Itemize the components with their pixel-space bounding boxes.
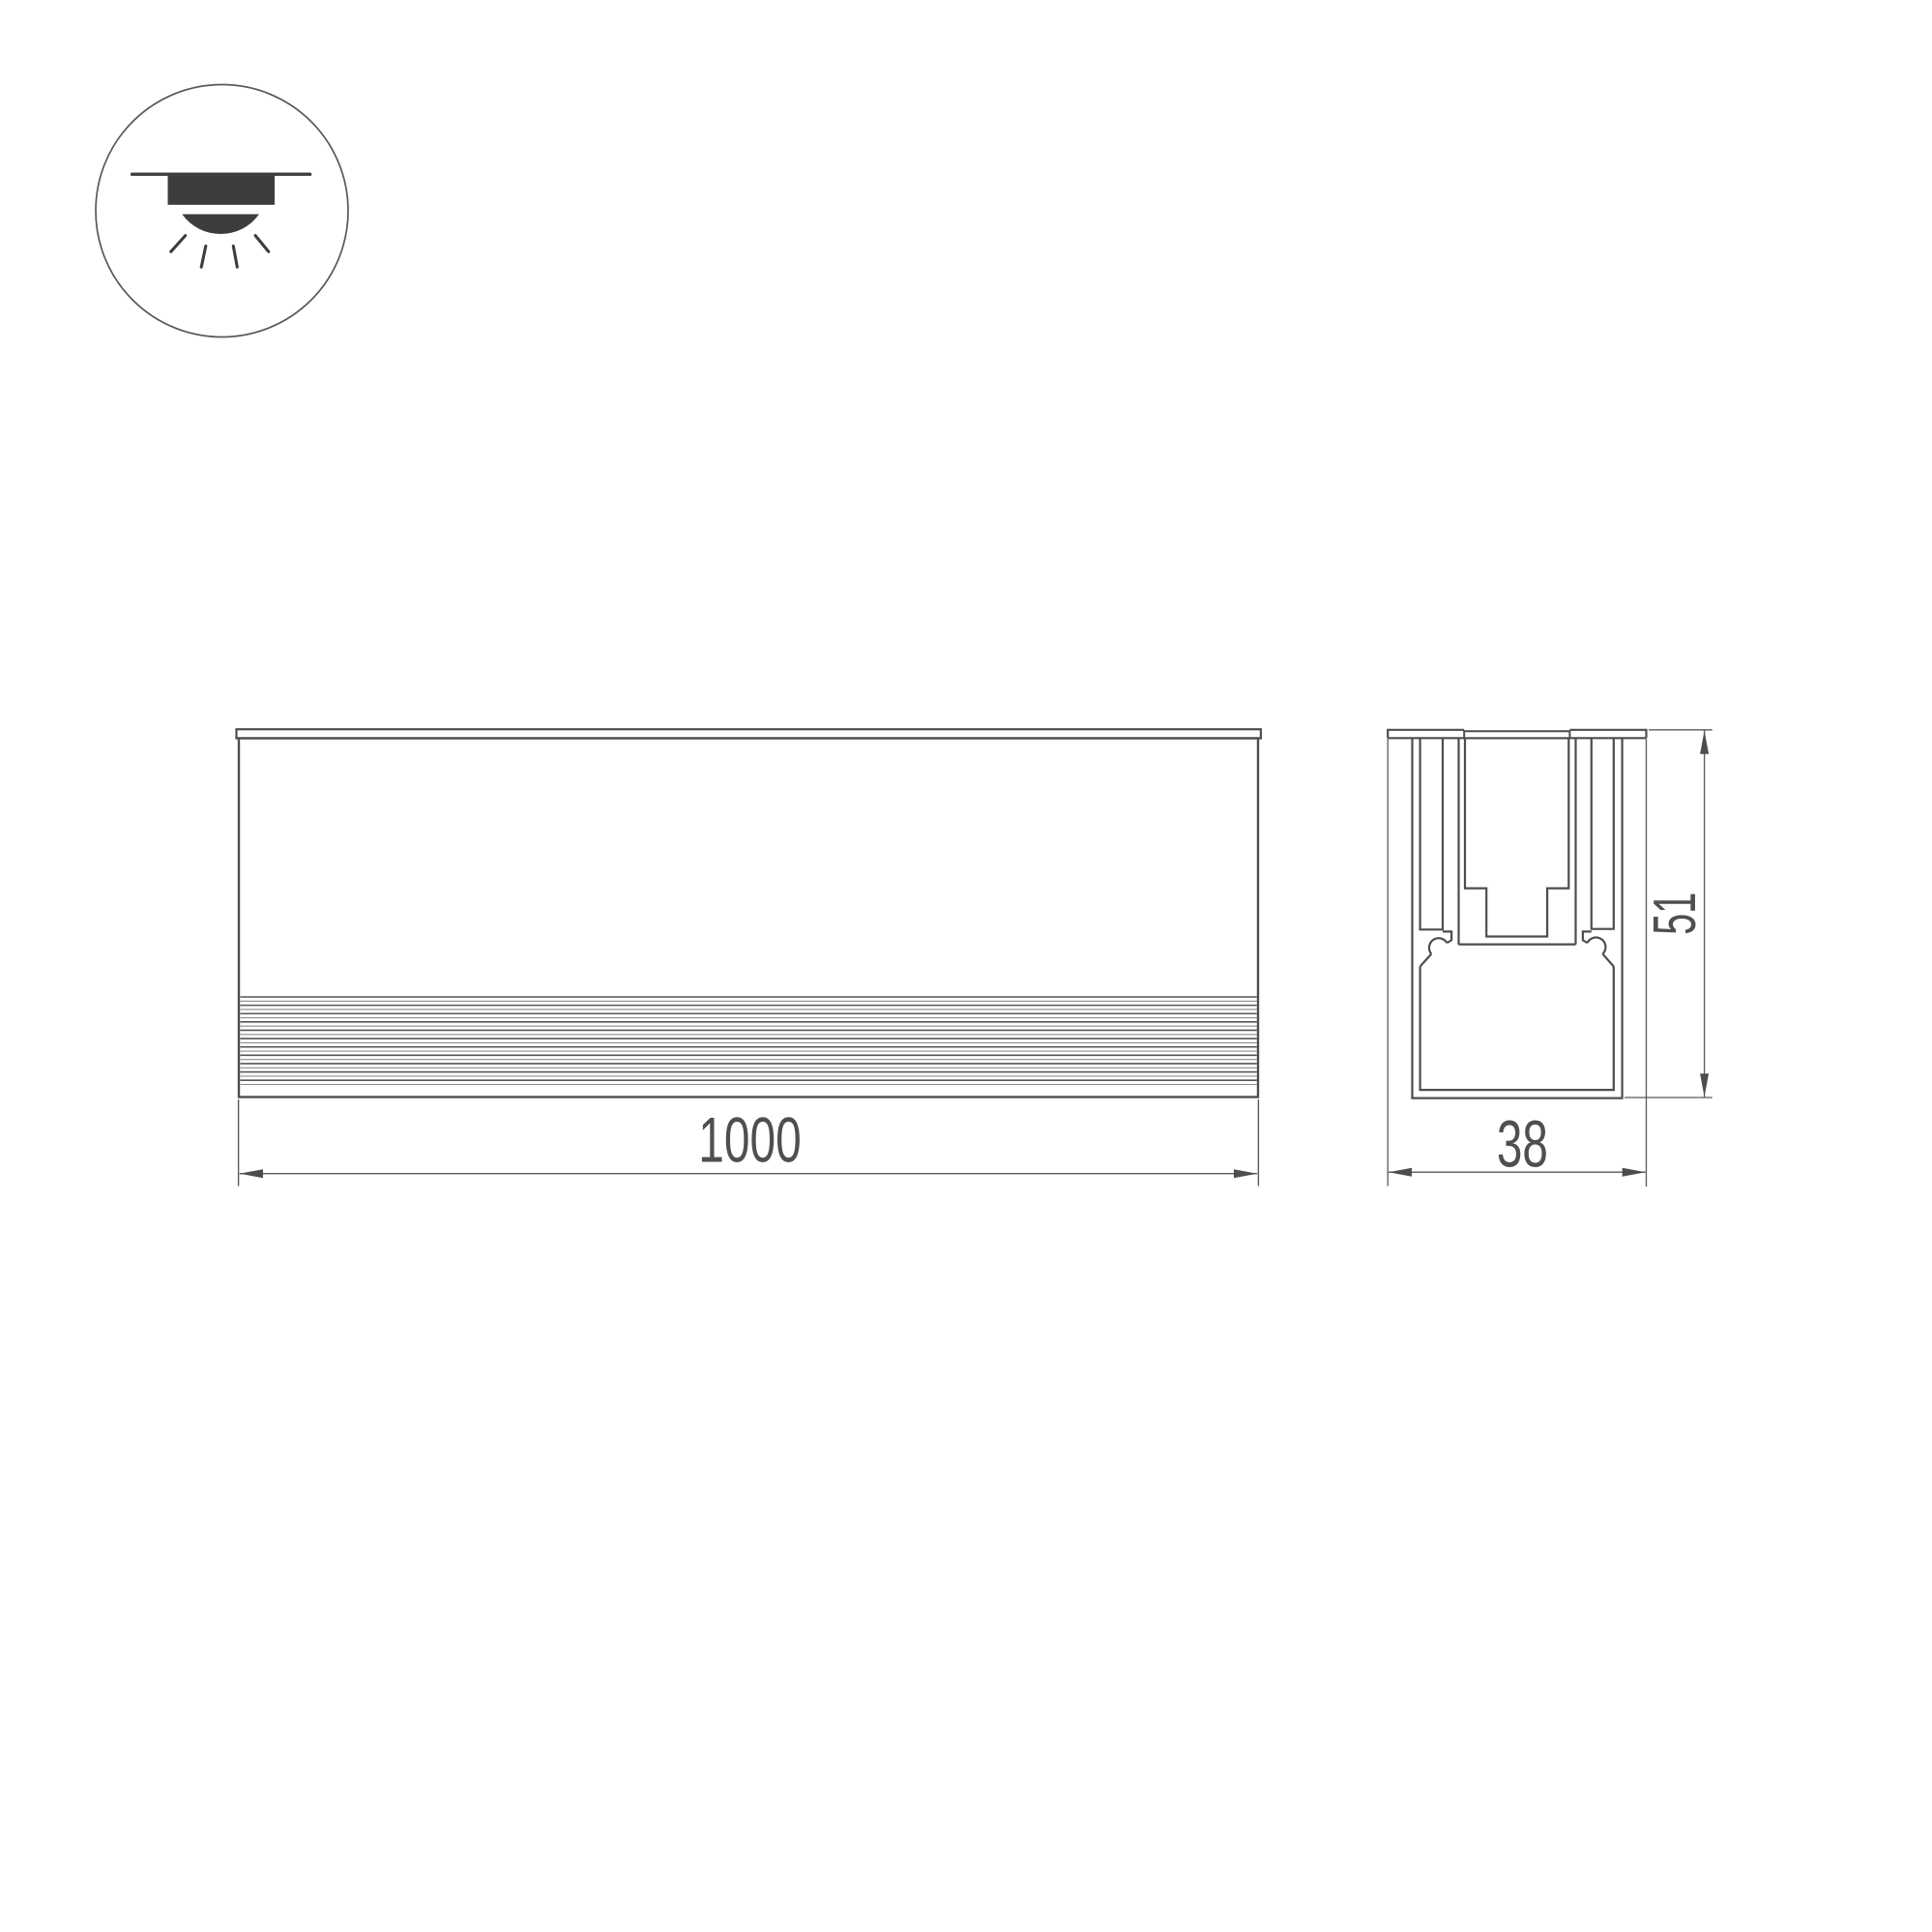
svg-text:1000: 1000 <box>698 1104 802 1176</box>
svg-text:38: 38 <box>1497 1107 1548 1182</box>
svg-text:51: 51 <box>1642 893 1709 935</box>
